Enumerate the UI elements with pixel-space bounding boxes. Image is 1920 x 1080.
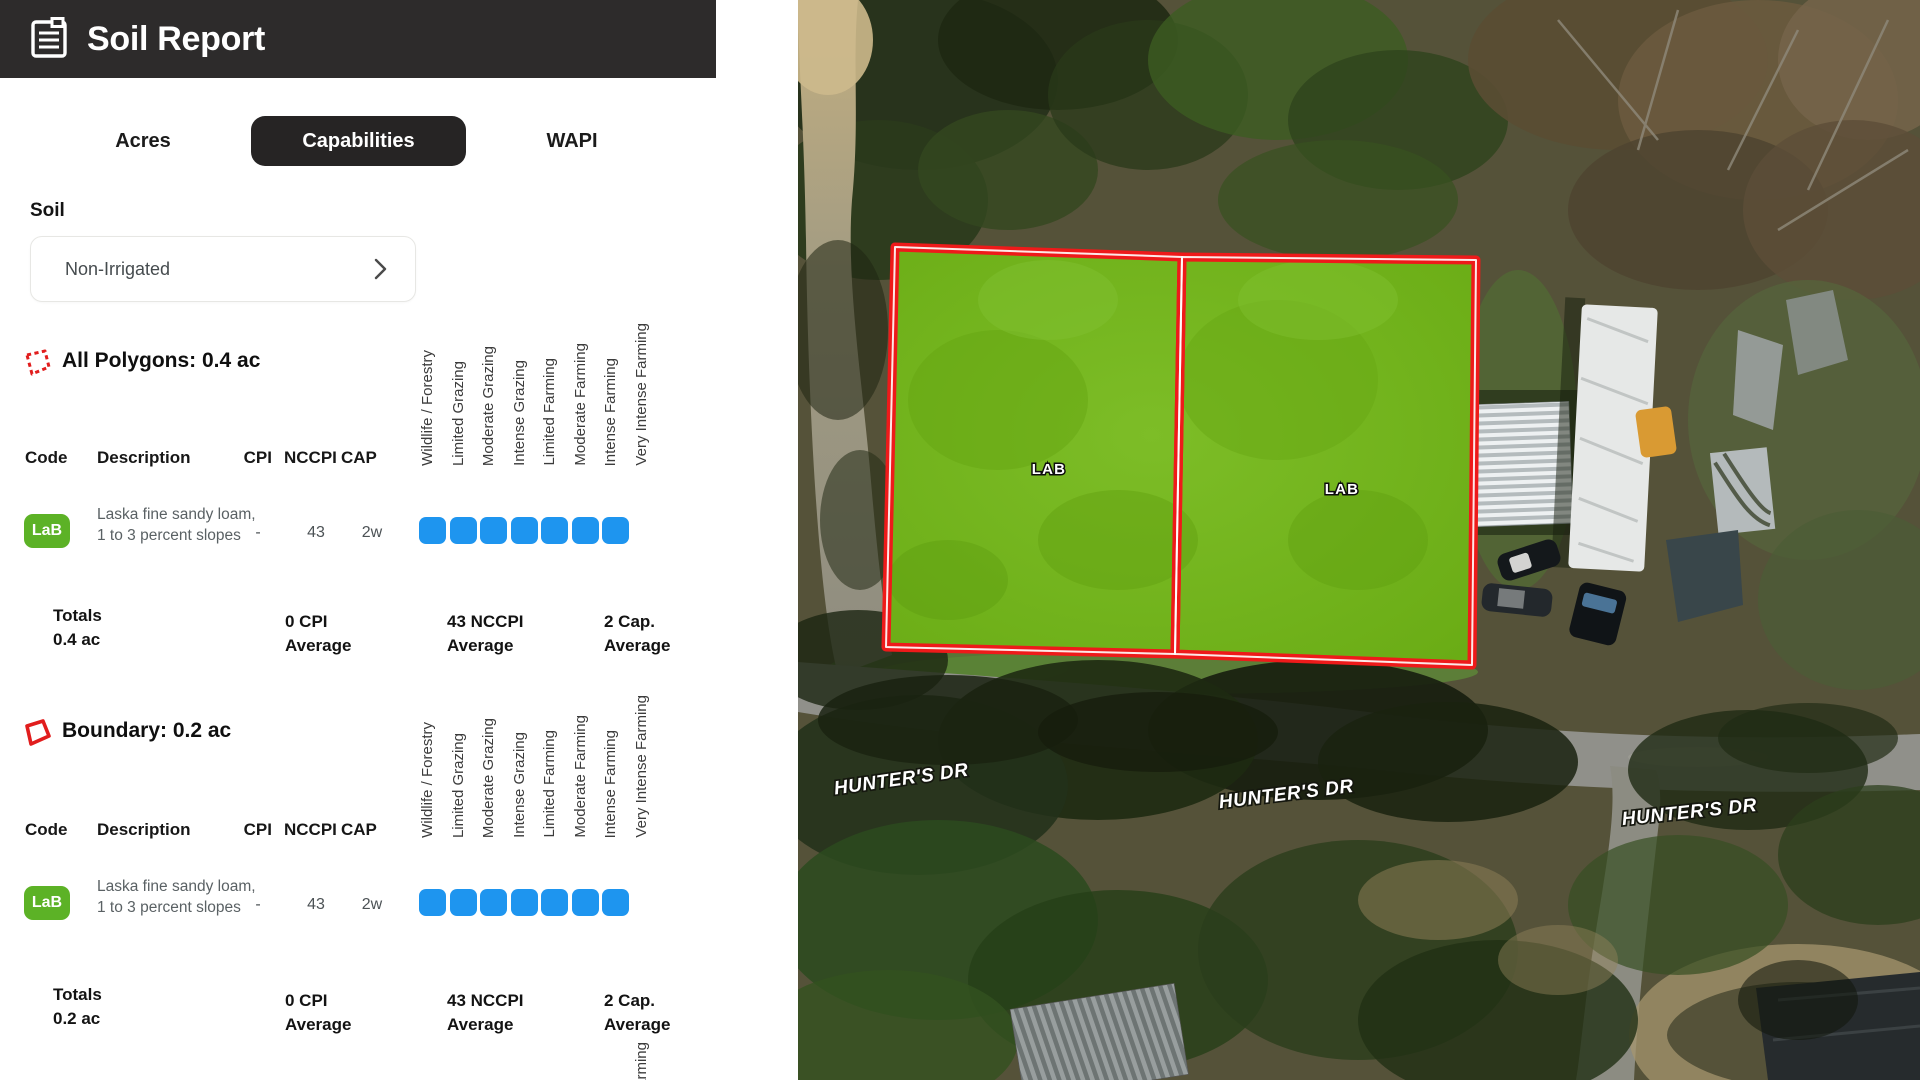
- cap-average: 2 Cap. Average: [604, 989, 670, 1037]
- capability-column-label: Moderate Farming: [572, 715, 603, 838]
- column-header-description: Description: [97, 820, 191, 840]
- solid-polygon-icon: [22, 717, 52, 747]
- nccpi-value: 43: [296, 524, 336, 542]
- column-header-cpi: CPI: [240, 448, 272, 468]
- app-header: Soil Report: [0, 0, 716, 78]
- capability-square: [480, 517, 507, 544]
- parcel-polygons[interactable]: [886, 247, 1476, 665]
- capability-column-label: Limited Farming: [541, 730, 572, 838]
- capability-column-label: Very Intense Farming: [633, 323, 664, 466]
- capability-square: [419, 517, 446, 544]
- irrigation-selector-value: Non-Irrigated: [65, 259, 369, 280]
- irrigation-selector[interactable]: Non-Irrigated: [30, 236, 416, 302]
- capability-column-label: Wildlife / Forestry: [419, 350, 450, 466]
- capability-column-label: Limited Grazing: [450, 733, 481, 838]
- soil-code-badge: LaB: [24, 514, 70, 548]
- boundary-title: Boundary: 0.2 ac: [62, 719, 231, 743]
- cpi-average: 0 CPI Average: [285, 989, 351, 1037]
- capability-square: [511, 517, 538, 544]
- nccpi-average: 43 NCCPI Average: [447, 610, 524, 658]
- column-header-cap: CAP: [341, 820, 377, 840]
- column-header-cap: CAP: [341, 448, 377, 468]
- cpi-value: -: [246, 524, 270, 542]
- nccpi-average: 43 NCCPI Average: [447, 989, 524, 1037]
- column-header-cpi: CPI: [240, 820, 272, 840]
- report-document-icon: [30, 17, 70, 61]
- cap-value: 2w: [350, 896, 394, 914]
- dashed-polygon-icon: [22, 347, 52, 377]
- orange-equipment: [1635, 406, 1677, 459]
- capability-square: [480, 889, 507, 916]
- capability-square: [602, 889, 629, 916]
- capability-square: [602, 517, 629, 544]
- capability-square: [541, 517, 568, 544]
- page-title: Soil Report: [87, 20, 265, 59]
- capability-column-label: Intense Farming: [602, 358, 633, 466]
- all-polygons-title: All Polygons: 0.4 ac: [62, 349, 260, 373]
- column-header-description: Description: [97, 448, 191, 468]
- chevron-right-icon: [369, 255, 391, 283]
- parcel-label: LAB: [1325, 481, 1359, 498]
- soil-description: Laska fine sandy loam, 1 to 3 percent sl…: [97, 504, 257, 547]
- capability-squares: [419, 517, 663, 544]
- capability-column-headers: Wildlife / Forestry Limited Grazing Mode…: [419, 288, 665, 466]
- capability-column-label: Moderate Grazing: [480, 718, 511, 838]
- capability-column-label: Wildlife / Forestry: [419, 722, 450, 838]
- tab-capabilities[interactable]: Capabilities: [251, 116, 466, 166]
- column-header-code: Code: [25, 448, 68, 468]
- soil-code-badge: LaB: [24, 886, 70, 920]
- capability-square: [572, 889, 599, 916]
- nccpi-value: 43: [296, 896, 336, 914]
- capability-square: [633, 517, 660, 544]
- column-header-nccpi: NCCPI: [284, 448, 337, 468]
- tab-acres[interactable]: Acres: [96, 116, 190, 166]
- capability-column-label: Very Intense Farming: [633, 695, 664, 838]
- map-canvas[interactable]: LAB LAB HUNTER'S DR HUNTER'S DR HUNTER'S…: [798, 0, 1920, 1080]
- cap-average: 2 Cap. Average: [604, 610, 670, 658]
- clipped-next-section-column: Very Intense Farming: [633, 1042, 663, 1080]
- column-header-nccpi: NCCPI: [284, 820, 337, 840]
- capability-column-label: Moderate Grazing: [480, 346, 511, 466]
- tab-wapi[interactable]: WAPI: [525, 116, 619, 166]
- capability-column-label: Intense Grazing: [511, 360, 542, 466]
- capability-square: [633, 889, 660, 916]
- soil-section-label: Soil: [30, 200, 65, 222]
- capability-square: [419, 889, 446, 916]
- parcel-label: LAB: [1032, 461, 1066, 478]
- cap-value: 2w: [350, 524, 394, 542]
- capability-column-label: Limited Farming: [541, 358, 572, 466]
- cpi-average: 0 CPI Average: [285, 610, 351, 658]
- totals-label: Totals 0.4 ac: [53, 604, 102, 652]
- capability-square: [450, 889, 477, 916]
- capability-column-label: Intense Grazing: [511, 732, 542, 838]
- cpi-value: -: [246, 896, 270, 914]
- capability-column-label: Limited Grazing: [450, 361, 481, 466]
- capability-column-label: Intense Farming: [602, 730, 633, 838]
- capability-square: [541, 889, 568, 916]
- soil-report-app: { "header": { "title": "Soil Report" }, …: [0, 0, 1920, 1080]
- capability-square: [450, 517, 477, 544]
- capability-square: [511, 889, 538, 916]
- soil-report-panel: Soil Report Acres Capabilities WAPI Soil…: [0, 0, 798, 1080]
- capability-squares: [419, 889, 663, 916]
- capability-column-headers: Wildlife / Forestry Limited Grazing Mode…: [419, 660, 665, 838]
- totals-label: Totals 0.2 ac: [53, 983, 102, 1031]
- capability-square: [572, 517, 599, 544]
- soil-description: Laska fine sandy loam, 1 to 3 percent sl…: [97, 876, 257, 919]
- capability-column-label: Moderate Farming: [572, 343, 603, 466]
- column-header-code: Code: [25, 820, 68, 840]
